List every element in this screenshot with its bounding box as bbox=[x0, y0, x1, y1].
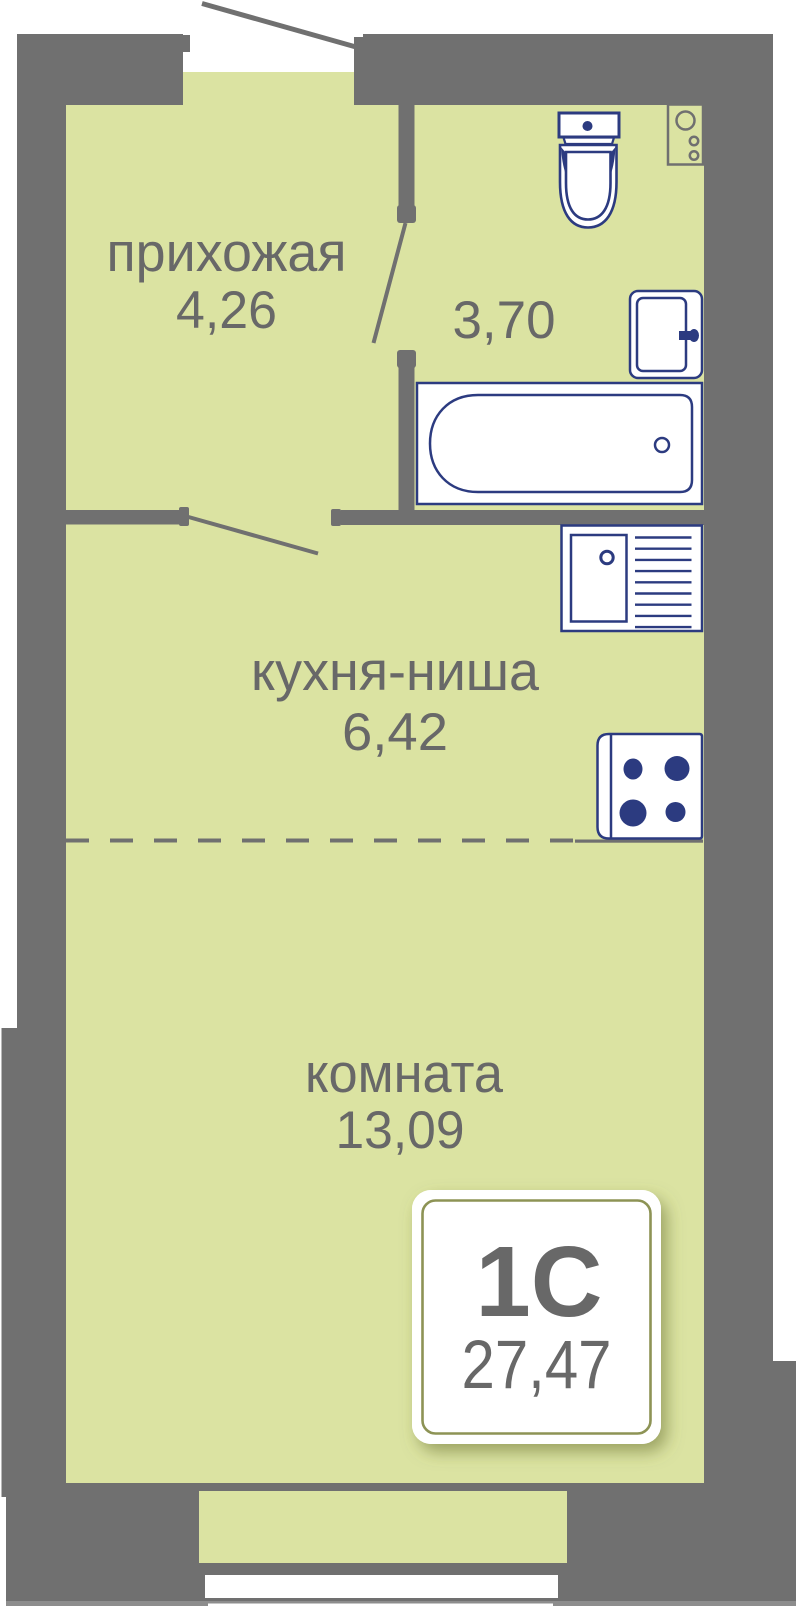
svg-text:4,26: 4,26 bbox=[176, 281, 277, 340]
svg-text:прихожая: прихожая bbox=[107, 221, 347, 283]
svg-text:комната: комната bbox=[305, 1042, 503, 1104]
svg-text:27,47: 27,47 bbox=[462, 1326, 612, 1403]
svg-text:3,70: 3,70 bbox=[453, 291, 556, 350]
svg-text:кухня-ниша: кухня-ниша bbox=[251, 640, 539, 702]
svg-text:6,42: 6,42 bbox=[342, 703, 448, 762]
svg-text:1С: 1С bbox=[476, 1226, 603, 1338]
svg-text:13,09: 13,09 bbox=[336, 1101, 465, 1160]
